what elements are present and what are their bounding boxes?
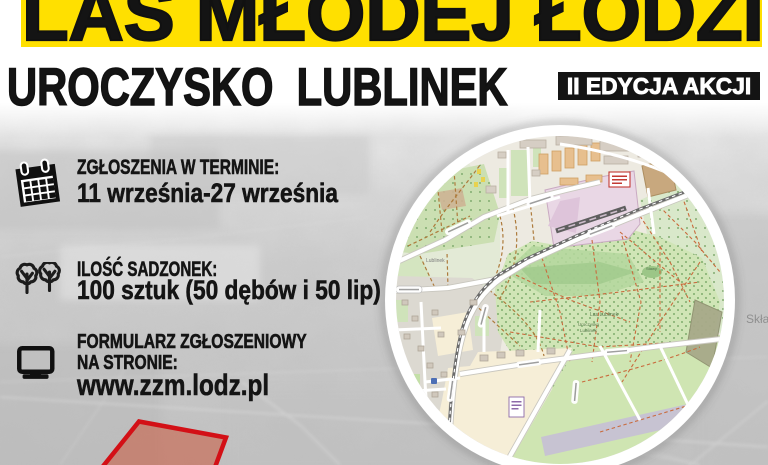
svg-text:Lublinek: Lublinek	[426, 258, 445, 264]
svg-text:Uroczysko: Uroczysko	[578, 322, 600, 327]
svg-text:Las Lublinek: Las Lublinek	[590, 312, 619, 318]
svg-text:Stawy: Stawy	[646, 266, 657, 271]
svg-text:Lublinek: Lublinek	[580, 328, 598, 333]
